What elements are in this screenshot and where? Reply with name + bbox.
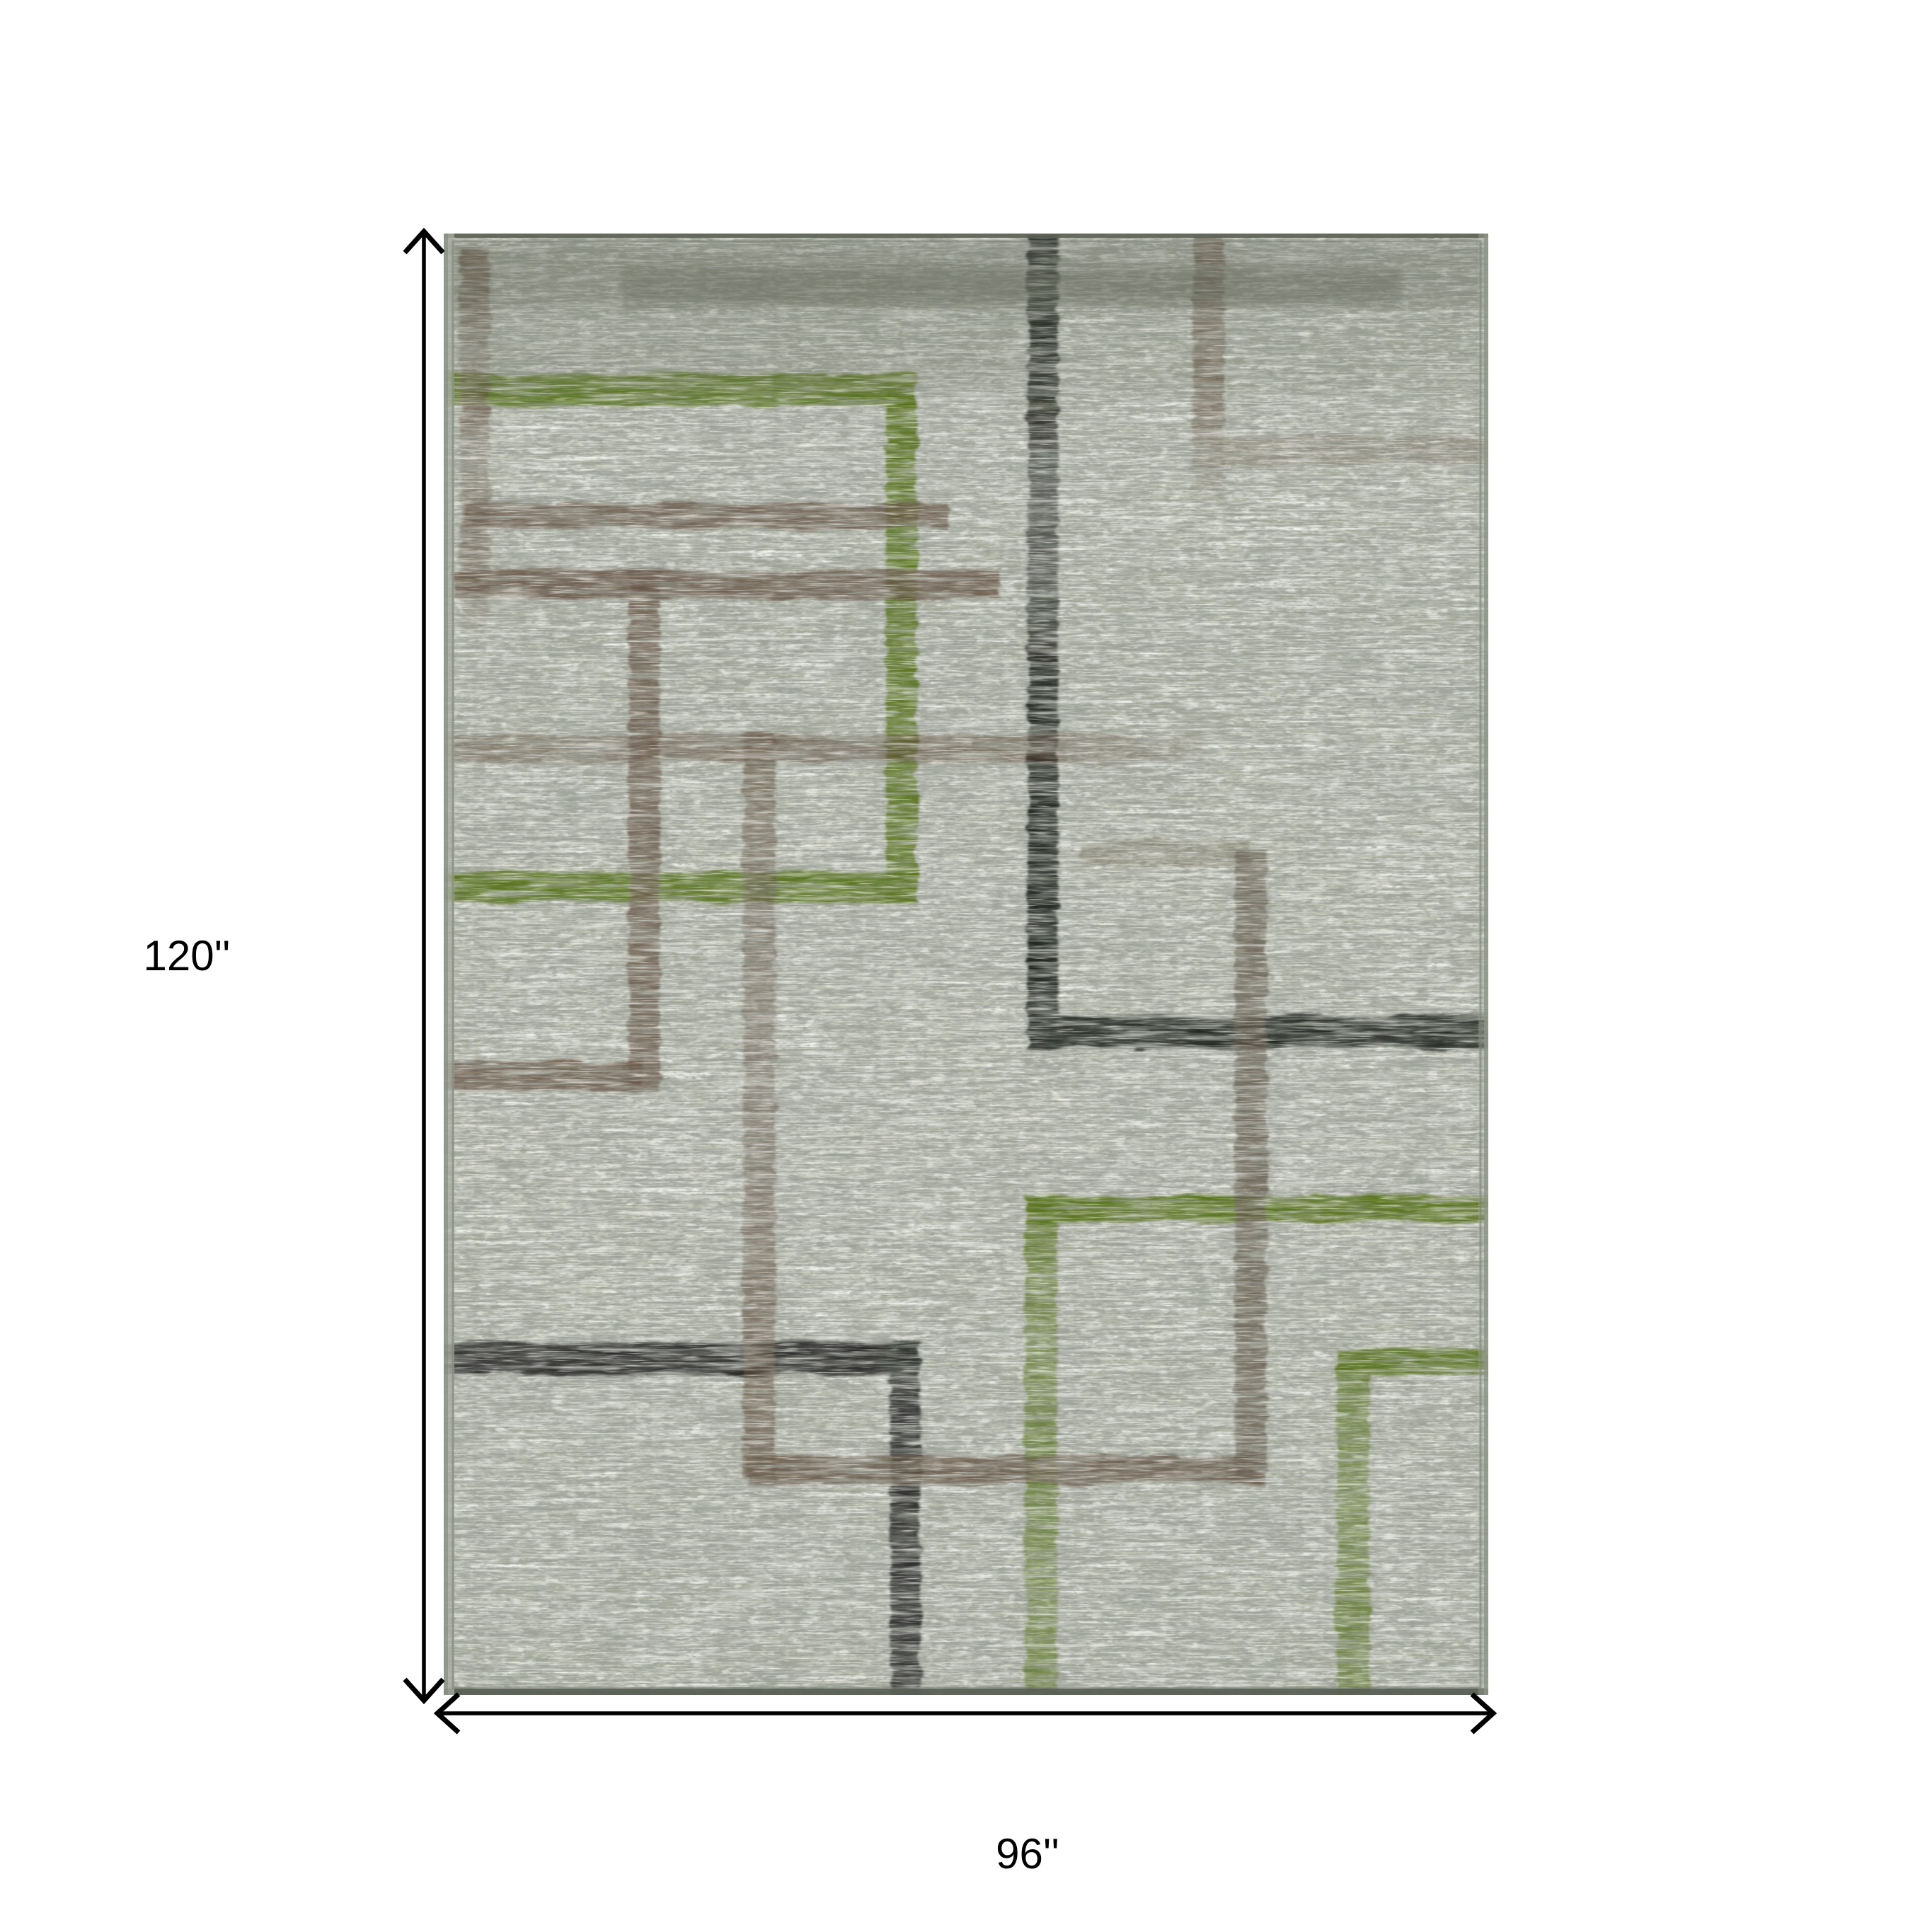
- svg-text:120'': 120'': [143, 932, 230, 979]
- svg-text:96'': 96'': [996, 1830, 1059, 1878]
